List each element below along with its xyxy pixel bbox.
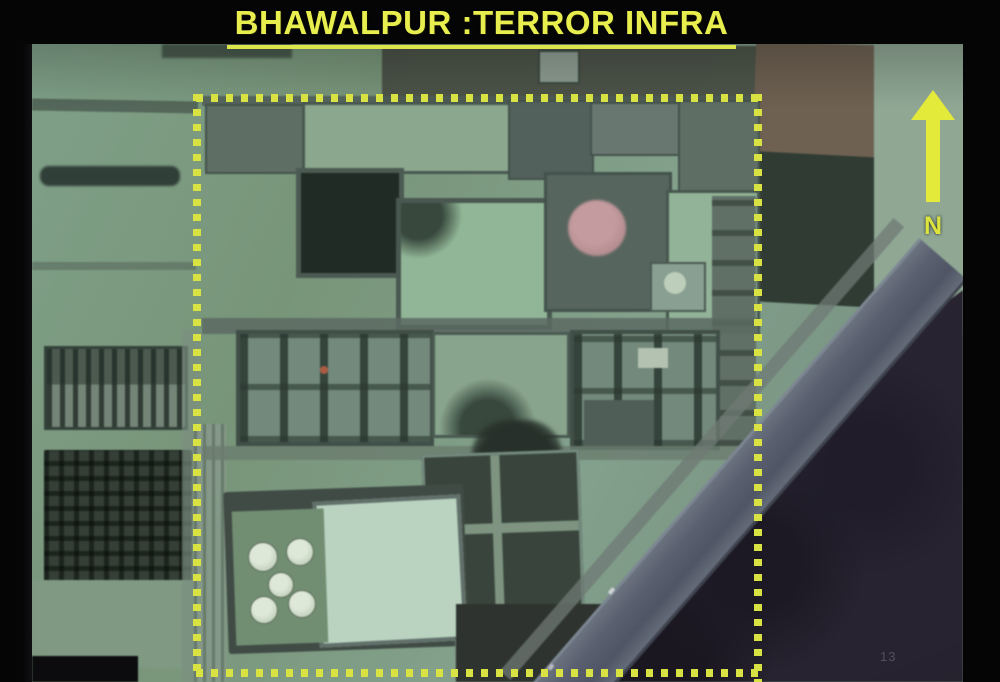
page-number: 13	[880, 649, 896, 664]
compound-building	[590, 102, 682, 156]
lawn-courtyard	[396, 198, 552, 330]
garden-path	[490, 455, 505, 613]
boundary-dotted-right	[754, 94, 762, 682]
shadow-corner	[32, 656, 138, 682]
screen-edge-left	[0, 0, 32, 682]
field-hedge	[32, 99, 198, 114]
compound-building	[205, 104, 304, 174]
mosque-dome	[268, 572, 294, 598]
terrain-layer	[32, 44, 963, 682]
rowhouse-cluster	[236, 330, 434, 446]
mosque-dome	[250, 596, 278, 624]
tree-garden-square	[296, 168, 404, 278]
barracks-building	[44, 346, 188, 430]
boundary-dotted-left	[193, 94, 201, 674]
field-bush-row	[40, 166, 180, 186]
north-label: N	[907, 212, 959, 241]
mosque-dome	[248, 542, 278, 572]
briefing-slide: BHAWALPUR :TERROR INFRA N 13	[0, 0, 1000, 682]
white-roof	[638, 348, 668, 368]
compound-building	[508, 100, 594, 180]
pink-dome-roof	[568, 200, 626, 256]
page-title: BHAWALPUR :TERROR INFRA	[227, 4, 737, 49]
boundary-dotted-top	[196, 94, 758, 102]
orchard-grove	[44, 450, 192, 586]
mosque-dome	[286, 538, 314, 566]
white-dome-roof	[664, 272, 686, 294]
red-roof-spot	[320, 366, 328, 374]
compound-courtyard	[302, 102, 513, 174]
field-bottom-left	[32, 580, 200, 668]
compound-building	[678, 100, 760, 196]
screen-edge-right	[963, 0, 1000, 682]
small-building	[538, 50, 580, 84]
north-arrow-icon	[907, 90, 959, 202]
field-boundary	[32, 262, 196, 270]
slide-header: BHAWALPUR :TERROR INFRA	[0, 0, 963, 46]
satellite-image	[32, 44, 963, 682]
compass: N	[907, 90, 959, 241]
mosque-dome	[288, 590, 316, 618]
compound-building	[584, 400, 654, 446]
mosque-courtyard	[312, 494, 467, 648]
boundary-dotted-bottom	[196, 669, 758, 677]
